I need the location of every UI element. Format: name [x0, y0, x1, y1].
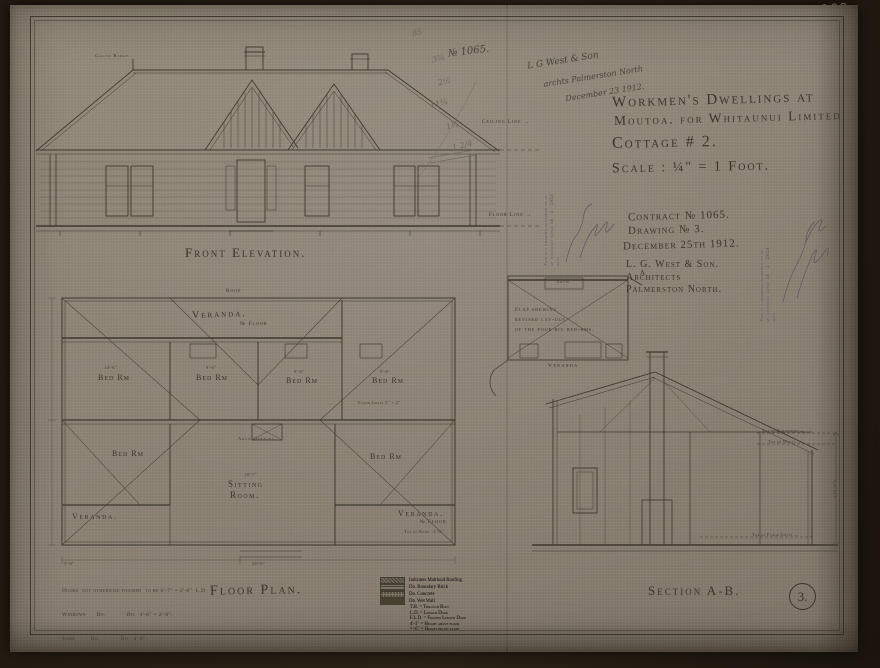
ridge-label: Galvd Ridge [95, 54, 129, 59]
architect-city: Palmerston North. [626, 285, 722, 296]
legend: Indicates Malthoid Roofing Do. Boundary … [380, 577, 466, 633]
stamp-line2: my contract dated 16 · 1 · 1913 [549, 194, 555, 266]
elevation-title: Front Elevation. [185, 246, 307, 260]
room-label-bed6: Bed Rm [370, 453, 402, 461]
legend-row: Do. Wet Wall [380, 598, 466, 605]
stamp-line2: my contract dated 16 · 1 · 1913 [766, 247, 772, 322]
small-plan-arch-label: Arch [556, 280, 570, 285]
hatch-swatch-brick [380, 584, 405, 591]
veranda-bottom-right-nofloor: № Floor [420, 520, 447, 525]
hatch-swatch-roofing [380, 577, 405, 584]
title-line3: Cottage # 2. [612, 134, 718, 153]
dim-bed3: 9'-6" [294, 369, 304, 374]
ceiling-line-label: Ceiling Line → [482, 120, 530, 125]
section-title: Section A-B. [648, 584, 740, 598]
section-height-dim: (10'-6") [832, 480, 837, 497]
legend-row: Indicates Malthoid Roofing [380, 577, 466, 584]
legend-row: Do. Concrete [380, 591, 466, 598]
legend-label: Do. Wet Wall [409, 599, 435, 604]
legend-label: Do. Boundary Brick [409, 585, 448, 590]
room-label-sitting2: Room. [230, 491, 260, 500]
floor-plan-title: Floor Plan. [210, 583, 303, 599]
joists-note: Floor Joists 5" × 2" [358, 400, 400, 405]
room-label-bed4: Bed Rm [372, 377, 404, 385]
drawing-number: Drawing № 3. [628, 224, 705, 238]
dim-bed2: 9'-6" [206, 365, 216, 370]
veranda-bottom-left-label: Veranda. [72, 513, 118, 521]
legend-label: Do. Concrete [409, 592, 435, 597]
legend-abbrev: ×'-6" = Height below plate [380, 627, 466, 633]
architect-role: Architects [626, 273, 681, 284]
veranda-bottom-right-label: Veranda. [398, 510, 444, 518]
photo-backdrop: 109 [0, 0, 880, 668]
veranda-top-nofloor: № Floor [240, 322, 268, 328]
top-of-partitions-label: Top of Partitions → [762, 428, 804, 433]
roof-note: Roof [226, 289, 241, 294]
note-line2: Windows Do. Do. 4'-6" × 2'-6". [62, 611, 207, 619]
flap-note1: Flap shewing [515, 308, 557, 314]
flap-note2: revised lay-out [515, 318, 566, 324]
top-of-walls-label: Top of Walls → [768, 439, 802, 444]
note-line1: Doors not otherwise figured to be 6'-7" … [62, 587, 207, 595]
room-label-bed1: Bed Rm [98, 374, 130, 382]
small-plan-drawing [490, 276, 642, 396]
dim-bed4: 9'-6" [380, 369, 390, 374]
room-label-bed5: Bed Rm [112, 450, 144, 458]
dim-plan-width: 36'-0" [252, 561, 265, 566]
dim-plan-left: 5'-6" [64, 561, 74, 566]
section-marker-a: A [640, 270, 646, 277]
general-notes: Doors not otherwise figured to be 6'-7" … [62, 571, 207, 659]
legend-label: Indicates Malthoid Roofing [409, 578, 462, 583]
title-line4: Scale : ¼" = 1 Foot. [612, 160, 770, 177]
floor-plan-drawing [48, 298, 455, 564]
room-label-sitting1: Sitting [228, 480, 264, 489]
hatch-swatch-concrete [380, 591, 405, 598]
dim-sitting: 18'-7" [244, 472, 257, 477]
top-of-floor-joists-label: Top of Floor Joists → [752, 532, 799, 537]
flap-note3: of the four big bed-rms. [515, 328, 594, 334]
dim-bed1: 14'-6" [104, 365, 117, 370]
note-line3: Sash Do. Do. 4'-6". [62, 635, 207, 643]
legend-row: Do. Boundary Brick [380, 584, 466, 591]
hatch-swatch-wetwall [380, 598, 405, 605]
contract-stamp-left: This is a drawing referred to in my cont… [543, 194, 561, 266]
stamp-line3: with [772, 247, 778, 322]
sheet-number-badge: 3. [789, 583, 816, 610]
room-label-bed3: Bed Rm [286, 377, 318, 385]
stamp-line3: with [555, 194, 561, 266]
veranda-top-label: Veranda. [192, 309, 247, 321]
room-label-bed2: Bed Rm [196, 374, 228, 382]
contract-stamp-right: This is a drawing referred to in my cont… [760, 247, 778, 322]
floor-line-label: Floor Line → [489, 213, 532, 218]
small-plan-veranda-label: Veranda [548, 364, 579, 370]
arch-opening-label: Arch Opening [238, 437, 275, 442]
section-drawing [532, 352, 839, 551]
kerb-label: Top of Kerb −1'-6" [404, 529, 444, 534]
